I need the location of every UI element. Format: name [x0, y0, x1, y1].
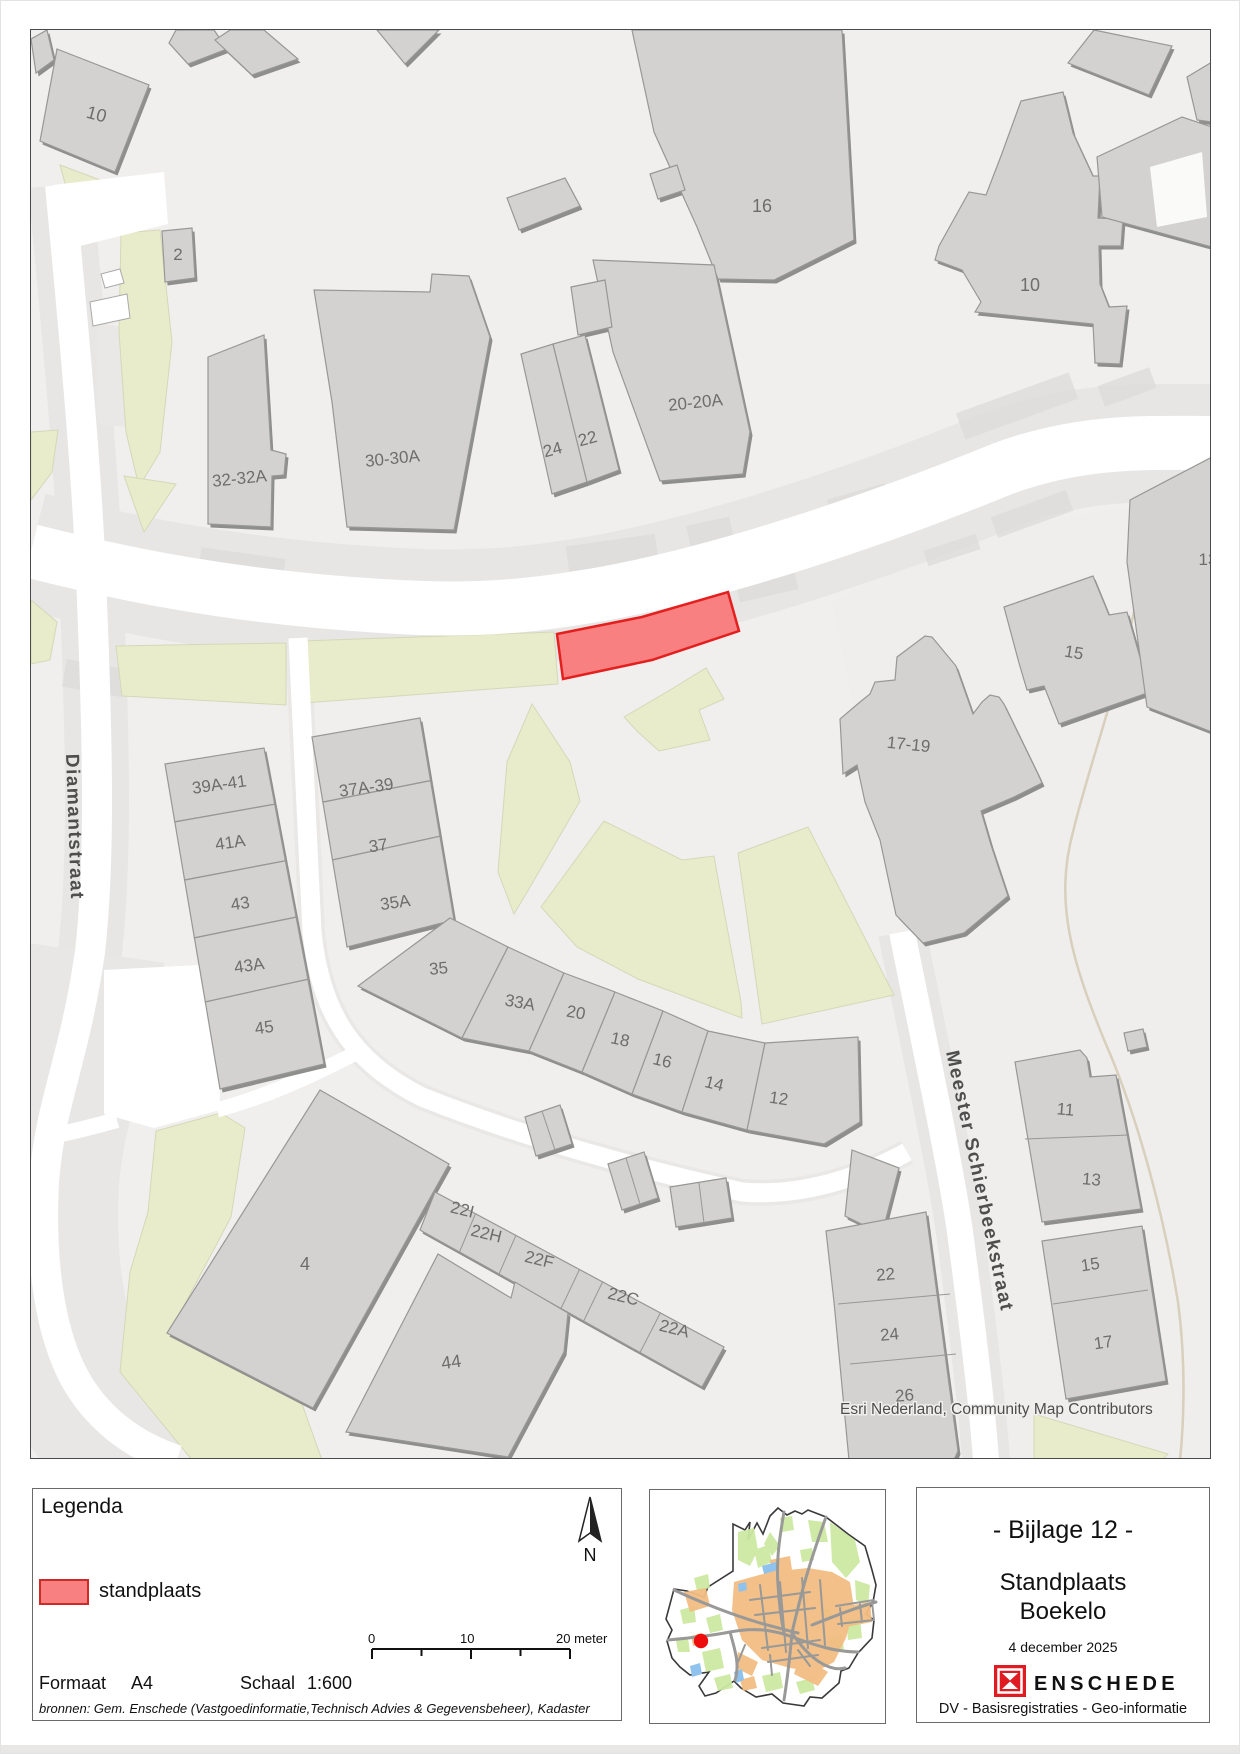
svg-text:2: 2 — [173, 245, 182, 264]
svg-text:4: 4 — [300, 1254, 310, 1274]
svg-text:13: 13 — [1081, 1169, 1102, 1190]
svg-text:10: 10 — [460, 1631, 474, 1646]
svg-text:10: 10 — [1020, 275, 1040, 295]
svg-text:13: 13 — [1199, 550, 1211, 569]
svg-text:26: 26 — [894, 1385, 915, 1406]
svg-text:18: 18 — [609, 1028, 631, 1051]
svg-text:12: 12 — [768, 1088, 789, 1109]
svg-text:20: 20 — [565, 1002, 587, 1024]
svg-text:45: 45 — [254, 1017, 275, 1038]
svg-text:ENSCHEDE: ENSCHEDE — [1034, 1673, 1179, 1695]
svg-text:11: 11 — [1056, 1099, 1075, 1119]
svg-text:17: 17 — [1093, 1332, 1114, 1353]
svg-text:0: 0 — [368, 1631, 375, 1646]
svg-text:N: N — [584, 1545, 597, 1565]
svg-text:20 meter: 20 meter — [556, 1631, 608, 1646]
svg-text:15: 15 — [1080, 1254, 1101, 1275]
svg-text:35: 35 — [428, 958, 449, 979]
svg-text:37: 37 — [368, 835, 389, 856]
svg-text:22: 22 — [875, 1264, 896, 1285]
svg-text:16: 16 — [752, 196, 772, 216]
svg-text:15: 15 — [1063, 642, 1085, 664]
svg-text:43: 43 — [230, 893, 251, 914]
svg-text:Esri Nederland, Community Map: Esri Nederland, Community Map Contributo… — [840, 1401, 1153, 1418]
svg-text:24: 24 — [879, 1324, 900, 1345]
svg-text:44: 44 — [440, 1351, 463, 1374]
